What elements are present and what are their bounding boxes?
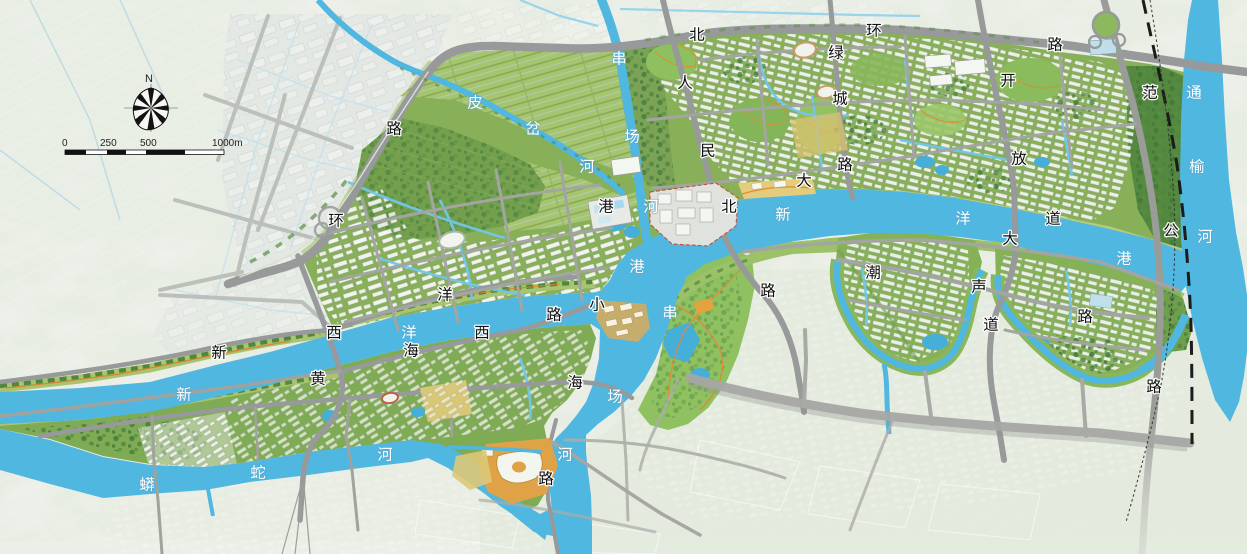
svg-text:1000m: 1000m — [212, 138, 243, 149]
svg-text:N: N — [145, 73, 153, 85]
svg-text:250: 250 — [100, 138, 117, 149]
svg-text:0: 0 — [62, 138, 68, 149]
svg-text:500: 500 — [140, 138, 157, 149]
